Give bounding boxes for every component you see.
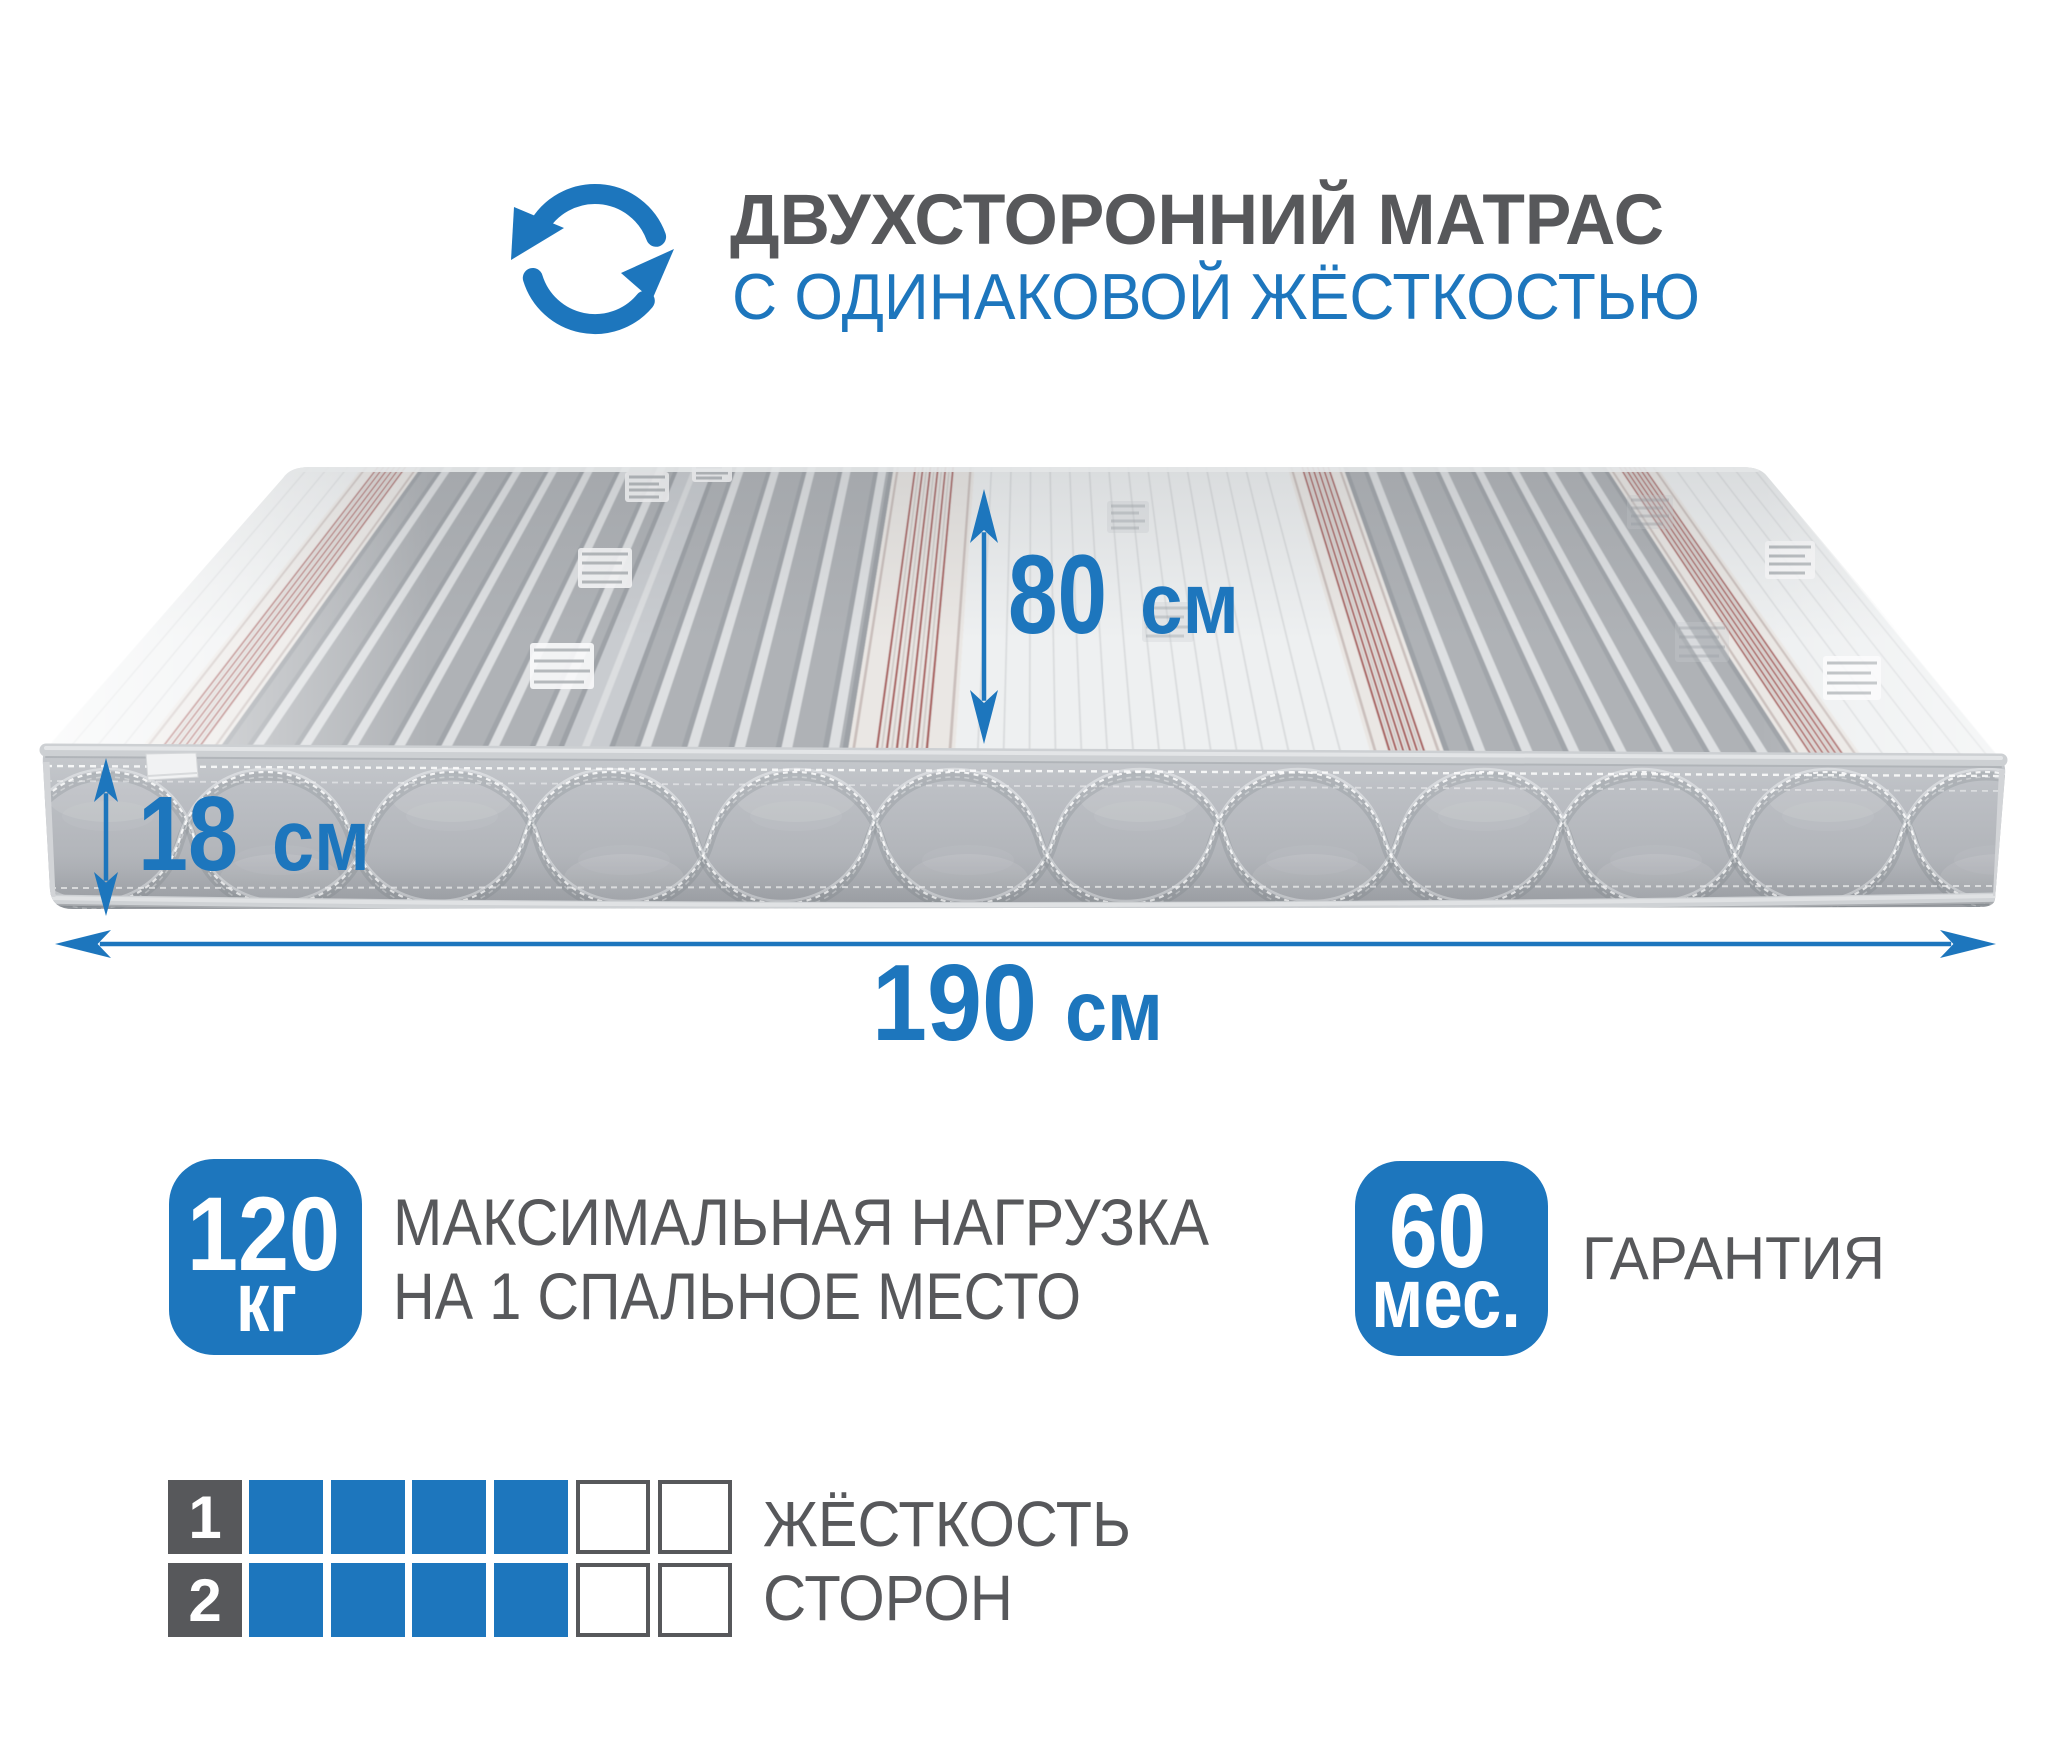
svg-text:см: см xyxy=(272,792,370,889)
svg-text:18: 18 xyxy=(138,775,238,893)
svg-text:80: 80 xyxy=(1008,532,1107,657)
svg-text:см: см xyxy=(1065,964,1163,1059)
svg-text:МАКСИМАЛЬНАЯ НАГРУЗКА: МАКСИМАЛЬНАЯ НАГРУЗКА xyxy=(393,1185,1209,1259)
svg-text:2: 2 xyxy=(188,1567,221,1634)
svg-text:190: 190 xyxy=(872,942,1037,1064)
svg-text:С ОДИНАКОВОЙ ЖЁСТКОСТЬЮ: С ОДИНАКОВОЙ ЖЁСТКОСТЬЮ xyxy=(732,260,1700,333)
svg-text:1: 1 xyxy=(188,1484,221,1551)
svg-text:НА 1 СПАЛЬНОЕ МЕСТО: НА 1 СПАЛЬНОЕ МЕСТО xyxy=(393,1259,1081,1333)
svg-text:ЖЁСТКОСТЬ: ЖЁСТКОСТЬ xyxy=(763,1488,1131,1560)
svg-text:ДВУХСТОРОННИЙ МАТРАС: ДВУХСТОРОННИЙ МАТРАС xyxy=(730,180,1664,260)
svg-text:см: см xyxy=(1140,555,1239,652)
svg-text:СТОРОН: СТОРОН xyxy=(763,1562,1013,1634)
svg-text:кг: кг xyxy=(236,1255,297,1350)
svg-text:мес.: мес. xyxy=(1371,1251,1521,1346)
svg-text:ГАРАНТИЯ: ГАРАНТИЯ xyxy=(1582,1225,1885,1292)
